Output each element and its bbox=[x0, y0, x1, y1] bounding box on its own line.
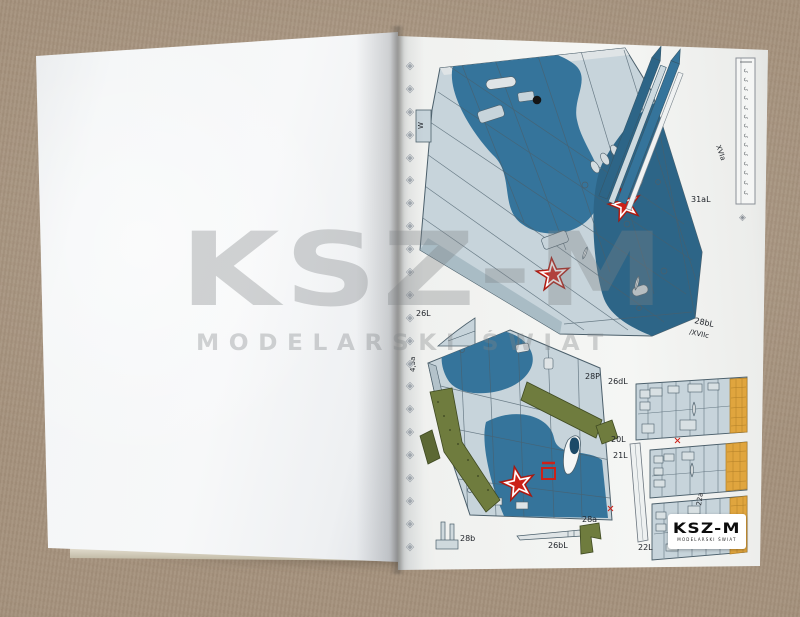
label-22L: 22L bbox=[638, 543, 653, 552]
strip-part-22L bbox=[630, 443, 648, 542]
ornament-glyph: ◈ bbox=[406, 541, 414, 552]
logo-title: KSZ-M bbox=[673, 522, 741, 536]
ornament-glyph: ◈ bbox=[739, 213, 746, 223]
lower-wing-part bbox=[420, 329, 618, 520]
skin-band-2 bbox=[650, 442, 747, 498]
label-26bL: 26bL bbox=[548, 541, 568, 550]
ornament-glyph: ◈ bbox=[406, 266, 414, 277]
label-28a: 28a bbox=[582, 515, 597, 524]
ornament-glyph: ◈ bbox=[406, 106, 414, 117]
ornament-glyph: ◈ bbox=[406, 197, 414, 208]
hole-mark-dot bbox=[533, 96, 542, 105]
ornament-glyph: ◈ bbox=[406, 289, 414, 300]
ornament-glyph: ◈ bbox=[406, 129, 414, 140]
ornament-glyph: ◈ bbox=[406, 220, 414, 231]
left-blank-page bbox=[30, 26, 400, 572]
pitot-part-26bL bbox=[517, 530, 582, 540]
ornament-glyph: ◈ bbox=[406, 449, 414, 460]
book-spine bbox=[390, 26, 404, 574]
label-26dL: 26dL bbox=[608, 377, 628, 386]
logo-subtitle: MODELARSKI ŚWIAT bbox=[677, 538, 736, 542]
label-28P: 28P bbox=[585, 372, 600, 381]
ornament-glyph: ◈ bbox=[406, 518, 414, 529]
label-xvia: XVIa bbox=[714, 144, 727, 162]
grain-marker bbox=[693, 402, 696, 416]
ksz-m-logo: KSZ-M MODELARSKI ŚWIAT bbox=[668, 514, 746, 549]
small-part-28b bbox=[436, 522, 458, 549]
ornament-glyph: ◈ bbox=[406, 380, 414, 391]
ornament-glyph: ◈ bbox=[406, 335, 414, 346]
ornament-glyph: ◈ bbox=[406, 243, 414, 254]
label-xviic: /XVIIc bbox=[689, 328, 710, 340]
ornament-glyph: ◈ bbox=[406, 426, 414, 437]
label-31aL: 31aL bbox=[691, 195, 711, 204]
skin-band-1 bbox=[636, 377, 747, 440]
scale-ruler-strip: ς ς ς ς ς ς ς ς ς ς ς ς ς ς ◈ bbox=[736, 58, 755, 223]
small-part-28a bbox=[580, 523, 601, 554]
ornament-glyph: ◈ bbox=[406, 403, 414, 414]
parts-sheet-art: ς ς ς ς ς ς ς ς ς ς ς ς ς ς ◈ bbox=[396, 28, 770, 574]
ornament-glyph: ◈ bbox=[406, 174, 414, 185]
grain-marker bbox=[691, 463, 694, 477]
ornament-glyph: ◈ bbox=[406, 312, 414, 323]
ornament-glyph: ◈ bbox=[406, 495, 414, 506]
red-cross-mark bbox=[675, 438, 680, 443]
right-parts-page: ς ς ς ς ς ς ς ς ς ς ς ς ς ς ◈ bbox=[396, 28, 770, 574]
photo-open-model-booklet: ς ς ς ς ς ς ς ς ς ς ς ς ς ς ◈ bbox=[0, 0, 800, 617]
label-21L: 21L bbox=[613, 451, 628, 460]
ornament-glyph: ◈ bbox=[406, 358, 414, 369]
ornament-glyph: ◈ bbox=[406, 60, 414, 71]
ornament-glyph: ◈ bbox=[406, 152, 414, 163]
ornament-glyph: ◈ bbox=[406, 83, 414, 94]
part-26L-triangle bbox=[438, 318, 475, 346]
upper-wing-part bbox=[416, 47, 702, 336]
ornament-column: ◈ ◈ ◈ ◈ ◈ ◈ ◈ ◈ ◈ ◈ ◈ ◈ ◈ ◈ ◈ ◈ ◈ ◈ ◈ ◈ … bbox=[402, 60, 418, 552]
label-28b: 28b bbox=[460, 534, 475, 543]
label-28bL: 28bL bbox=[694, 316, 716, 329]
ornament-glyph: ◈ bbox=[406, 472, 414, 483]
label-20L: 20L bbox=[611, 435, 626, 444]
